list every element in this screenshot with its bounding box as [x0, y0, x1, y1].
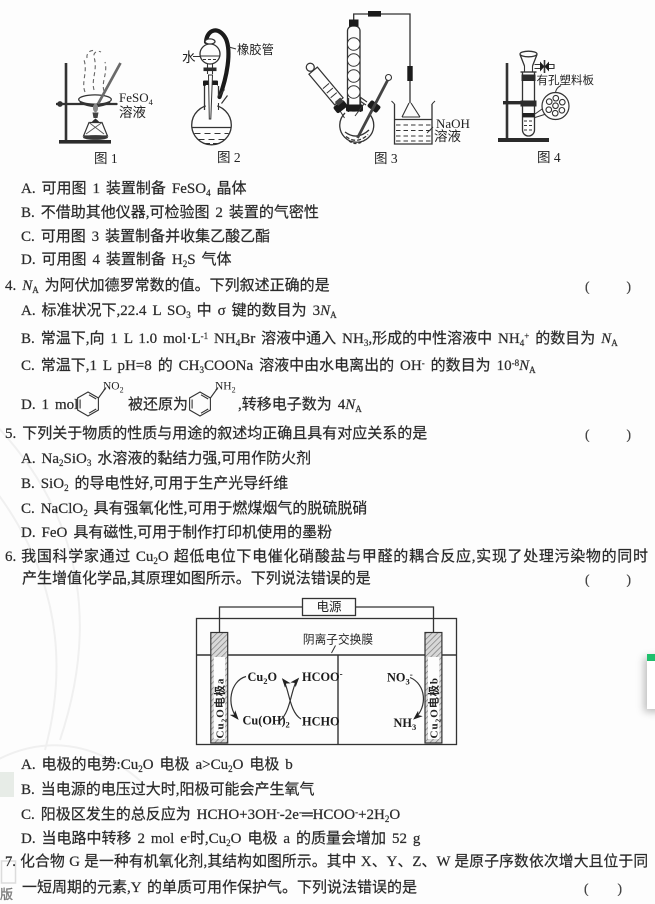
- svg-text:Cu2O电极b: Cu2O电极b: [427, 677, 443, 739]
- svg-text:HCOO-: HCOO-: [302, 669, 343, 684]
- svg-text:NH2: NH2: [215, 381, 236, 395]
- svg-text:图 3: 图 3: [374, 151, 398, 166]
- svg-text:图 4: 图 4: [537, 150, 561, 165]
- svg-text:橡胶管: 橡胶管: [237, 42, 274, 57]
- svg-text:NO3-: NO3-: [387, 670, 413, 687]
- svg-text:溶液: 溶液: [119, 105, 146, 120]
- svg-text:有孔塑料板: 有孔塑料板: [537, 73, 595, 87]
- svg-text:NH3: NH3: [394, 716, 417, 732]
- svg-text:Cu2O电极a: Cu2O电极a: [213, 678, 229, 739]
- svg-text:Cu2O: Cu2O: [248, 670, 278, 686]
- svg-text:溶液: 溶液: [434, 129, 461, 144]
- svg-text:Cu(OH)2: Cu(OH)2: [243, 714, 290, 730]
- svg-text:HCHO: HCHO: [302, 715, 340, 729]
- svg-text:NO2: NO2: [103, 381, 124, 395]
- svg-text:阴离子交换膜: 阴离子交换膜: [303, 633, 373, 647]
- svg-text:水: 水: [182, 50, 196, 65]
- svg-text:电源: 电源: [316, 600, 342, 614]
- svg-text:图 2: 图 2: [217, 150, 241, 165]
- svg-text:图 1: 图 1: [94, 151, 118, 166]
